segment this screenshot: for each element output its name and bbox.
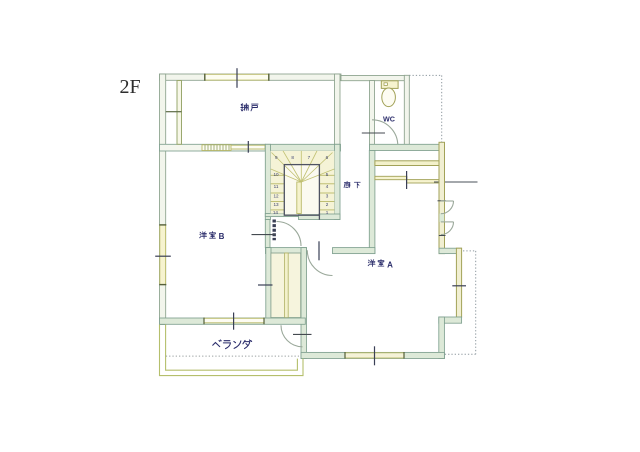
svg-text:WC: WC <box>383 115 395 124</box>
svg-text:4: 4 <box>326 184 329 189</box>
svg-text:9: 9 <box>275 155 278 160</box>
svg-text:10: 10 <box>273 172 279 177</box>
svg-text:5: 5 <box>326 172 329 177</box>
svg-text:A: A <box>387 260 393 269</box>
svg-text:6: 6 <box>326 155 329 160</box>
svg-text:B: B <box>219 232 225 241</box>
svg-text:14: 14 <box>273 210 279 215</box>
svg-text:1: 1 <box>326 210 329 215</box>
svg-text:8: 8 <box>291 155 294 160</box>
svg-text:3: 3 <box>326 194 329 199</box>
svg-text:2F: 2F <box>119 76 140 98</box>
svg-text:13: 13 <box>273 202 279 207</box>
svg-text:7: 7 <box>308 155 311 160</box>
svg-text:12: 12 <box>273 194 279 199</box>
svg-text:2: 2 <box>326 202 329 207</box>
svg-text:11: 11 <box>274 184 279 189</box>
